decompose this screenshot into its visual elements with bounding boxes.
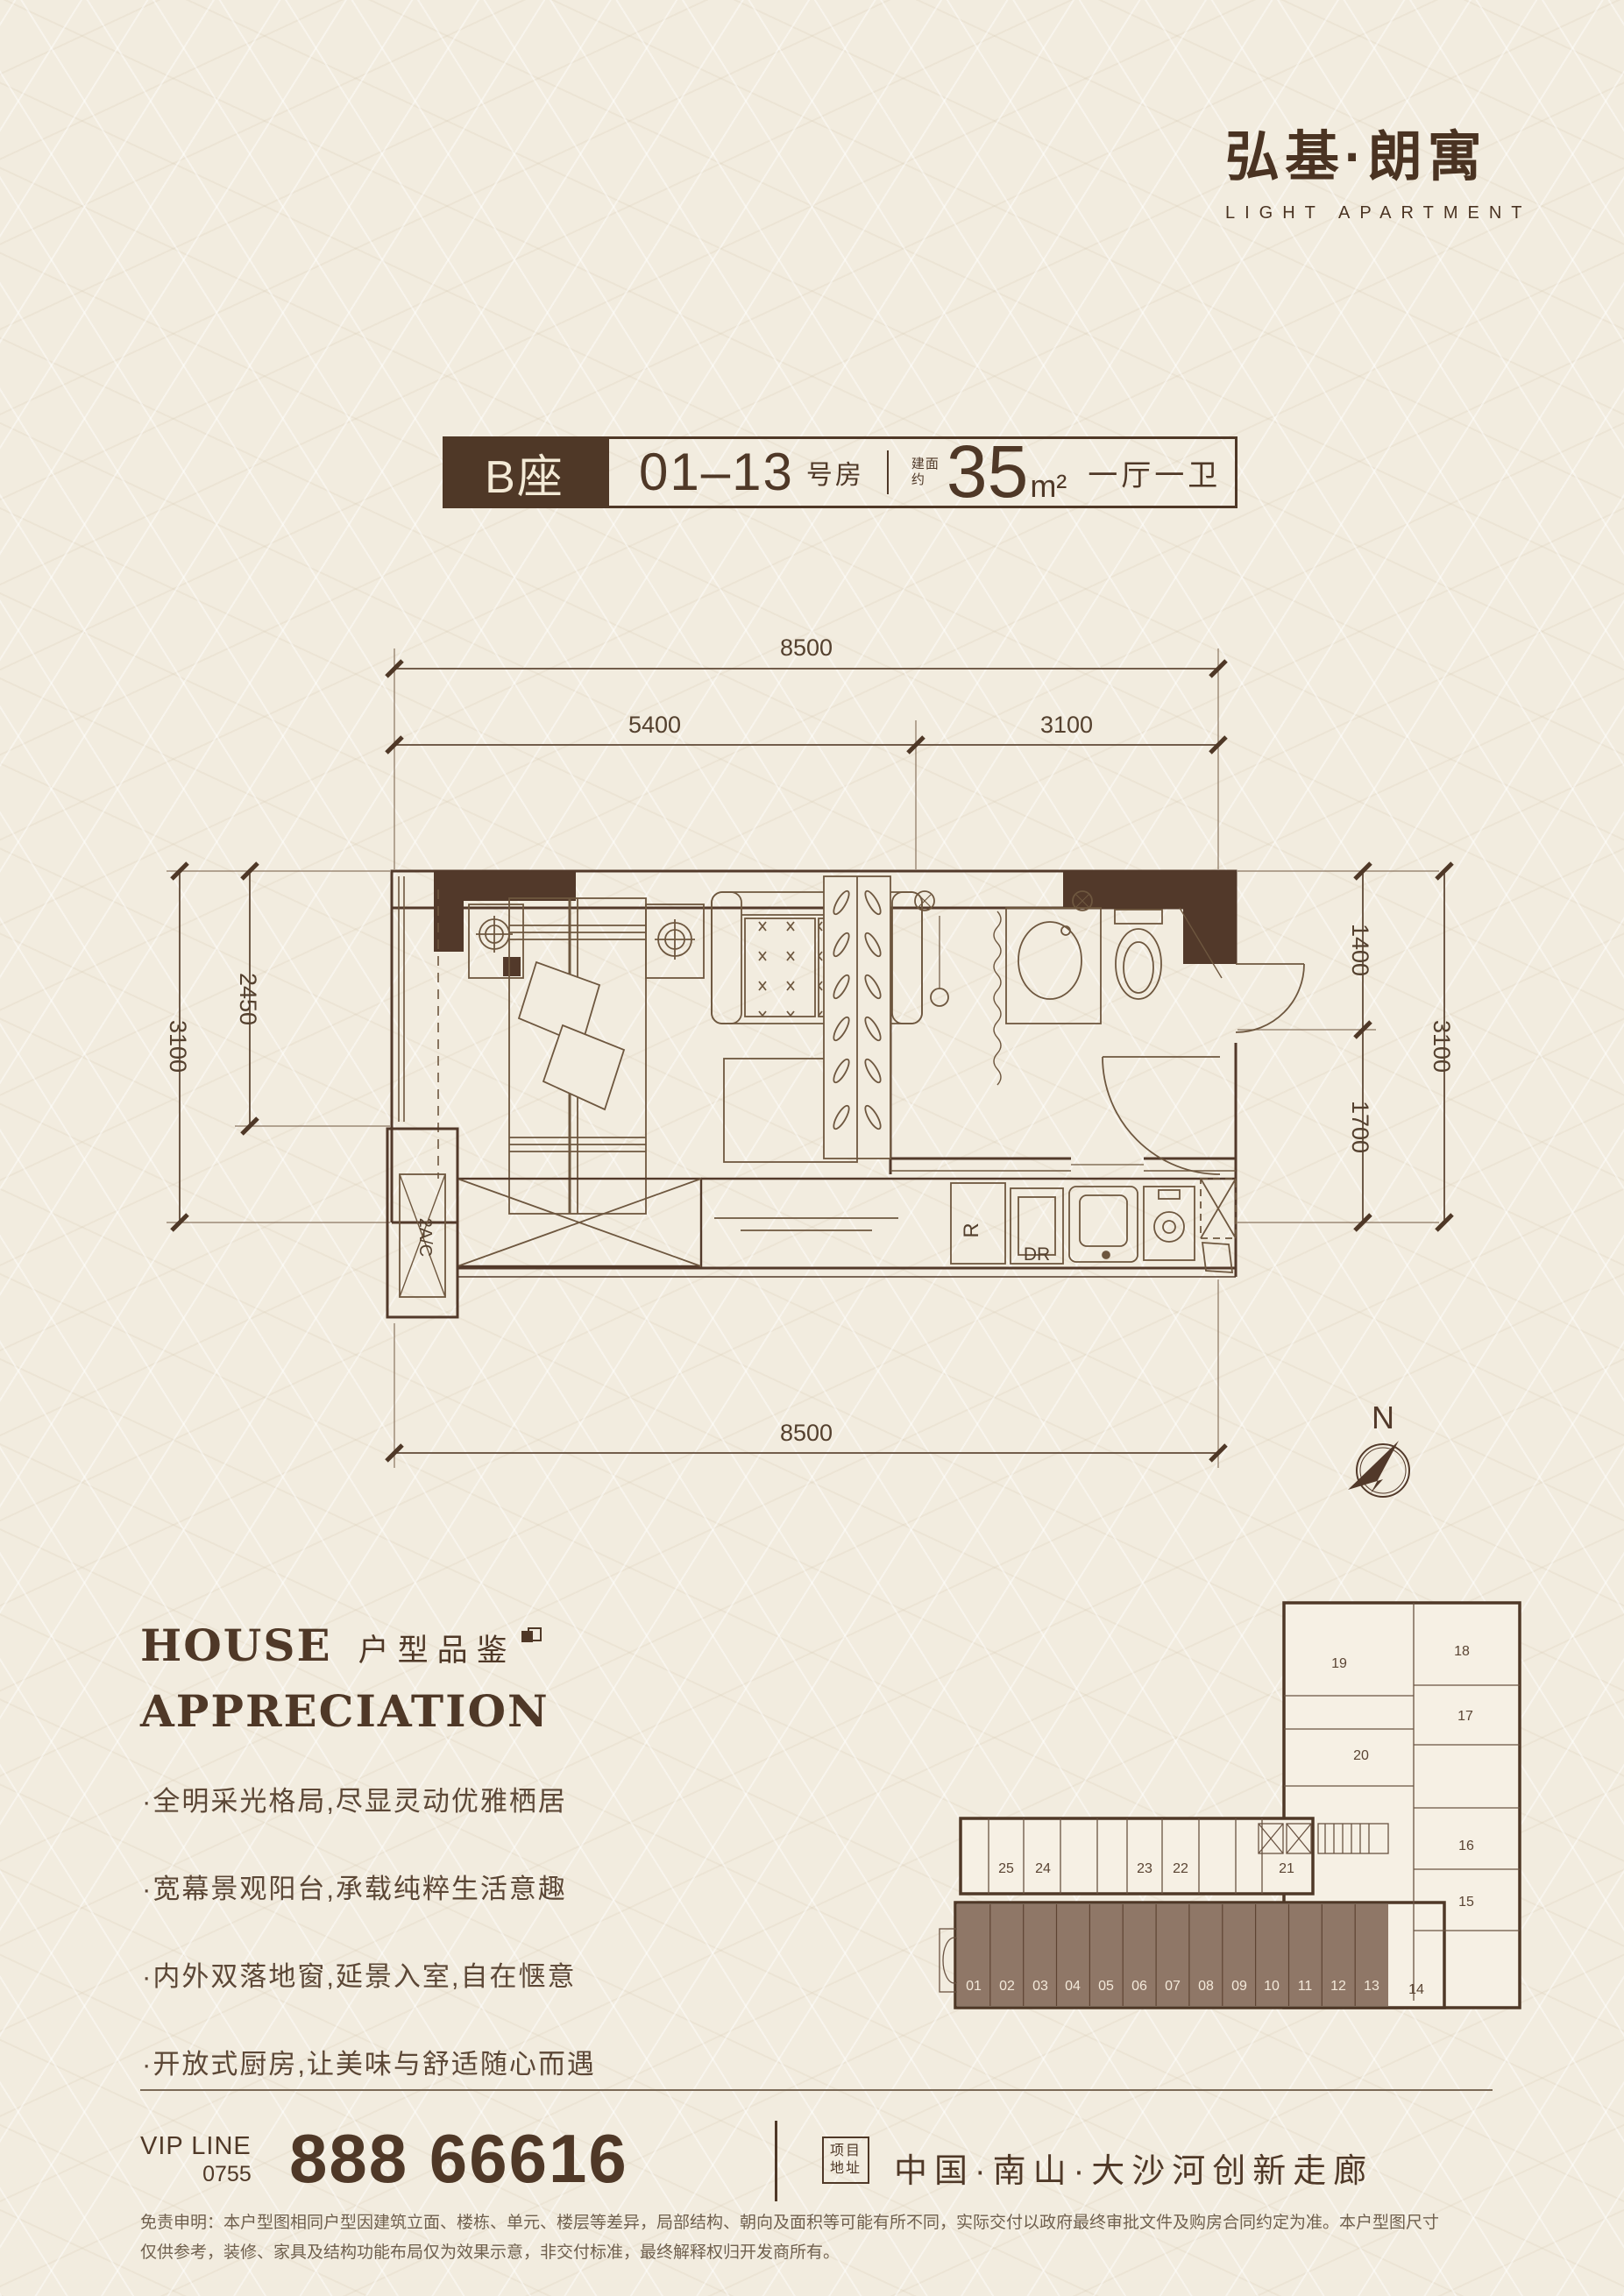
- project-address: 中国·南山·大沙河创新走廊: [894, 2144, 1373, 2192]
- unit-info-box: 01–13 号房 建面 约 35 m² 一厅一卫: [606, 436, 1238, 508]
- block-badge: B座: [443, 436, 606, 508]
- info-divider: [887, 450, 889, 494]
- dim-right-bottom: 1700: [1347, 1101, 1373, 1153]
- bullet-1: ·全明采光格局,尽显灵动优雅栖居: [142, 1758, 596, 1846]
- dim-top-left: 5400: [628, 712, 681, 738]
- brand-title: 弘基·朗寓: [1225, 112, 1531, 191]
- site-key-plan: 01 02 03 04 05 06 07 08 09 10 11 12 13 1…: [901, 1597, 1550, 2028]
- unit-16: 16: [1458, 1839, 1474, 1853]
- vip-line-label: VIP LINE: [140, 2133, 252, 2159]
- unit-08: 08: [1198, 1979, 1214, 1994]
- contact-divider: [775, 2121, 777, 2201]
- unit-18: 18: [1454, 1644, 1470, 1659]
- dim-right-top: 1400: [1347, 924, 1373, 976]
- hall-door: [1103, 1057, 1220, 1174]
- brand-subtitle: LIGHT APARTMENT: [1225, 203, 1531, 223]
- unit-01: 01: [966, 1979, 982, 1994]
- fridge-label: R: [960, 1222, 983, 1237]
- unit-11: 11: [1298, 1979, 1313, 1994]
- unit-07: 07: [1165, 1979, 1181, 1994]
- bullet-4: ·开放式厨房,让美味与舒适随心而遇: [142, 2021, 596, 2108]
- unit-19: 19: [1331, 1656, 1347, 1671]
- dim-top-right: 3100: [1040, 712, 1093, 738]
- unit-15: 15: [1458, 1895, 1474, 1910]
- selling-points: ·全明采光格局,尽显灵动优雅栖居 ·宽幕景观阳台,承载纯粹生活意趣 ·内外双落地…: [142, 1758, 596, 2108]
- area-group: 35 m²: [940, 441, 1067, 505]
- unit-10: 10: [1264, 1979, 1280, 1994]
- address-label-box: 项目 地址: [822, 2137, 869, 2184]
- brand-logo: 弘基·朗寓 LIGHT APARTMENT: [1225, 112, 1531, 223]
- wardrobe: [824, 876, 890, 1159]
- vip-phone-number: 888 66616: [289, 2124, 628, 2193]
- bathroom-fixtures: [915, 891, 1222, 1085]
- vip-line-block: VIP LINE 0755: [140, 2133, 252, 2187]
- appreciation-heading: HOUSE 户型品鉴 APPRECIATION: [140, 1619, 550, 1737]
- area-unit: m²: [1030, 468, 1067, 505]
- bedroom-furniture: [469, 898, 704, 1214]
- disclaimer-line-2: 仅供参考，装修、家具及结构功能布局仅为效果示意，非交付标准，最终解释权归开发商所…: [140, 2238, 1525, 2268]
- dimension-labels: 8500 5400 3100 8500 3100 2450 1400 1700 …: [165, 634, 1455, 1446]
- heading-en-1: HOUSE: [140, 1619, 332, 1671]
- unit-23: 23: [1137, 1861, 1152, 1876]
- heading-cn: 户型品鉴: [358, 1626, 516, 1670]
- layout-text: 一厅一卫: [1088, 451, 1221, 494]
- bullet-2: ·宽幕景观阳台,承载纯粹生活意趣: [142, 1846, 596, 1933]
- dim-left-inner: 2450: [235, 973, 261, 1025]
- poster: 弘基·朗寓 LIGHT APARTMENT B座 01–13 号房 建面 约 3…: [0, 0, 1624, 2296]
- heading-en-2: APPRECIATION: [140, 1685, 550, 1737]
- unit-12: 12: [1330, 1979, 1346, 1994]
- unit-17: 17: [1457, 1709, 1473, 1724]
- unit-05: 05: [1098, 1979, 1114, 1994]
- bullet-3: ·内外双落地窗,延景入室,自在惬意: [142, 1933, 596, 2021]
- room-range-suffix: 号房: [806, 453, 864, 492]
- footer-separator: [140, 2089, 1493, 2091]
- dim-top-total: 8500: [780, 634, 833, 661]
- dim-right-outer: 3100: [1429, 1020, 1455, 1073]
- unit-24: 24: [1035, 1861, 1051, 1876]
- floor-plan: 8500 5400 3100 8500 3100 2450 1400 1700 …: [131, 613, 1490, 1542]
- unit-03: 03: [1032, 1979, 1048, 1994]
- ac-label: 2A/C: [415, 1218, 435, 1257]
- room-range: 01–13: [639, 446, 794, 499]
- unit-21: 21: [1279, 1861, 1294, 1876]
- unit-09: 09: [1231, 1979, 1247, 1994]
- unit-25: 25: [998, 1861, 1014, 1876]
- unit-13: 13: [1364, 1979, 1379, 1994]
- entry-door: [1236, 964, 1304, 1032]
- unit-04: 04: [1065, 1979, 1081, 1994]
- unit-20: 20: [1353, 1748, 1369, 1763]
- unit-22: 22: [1173, 1861, 1188, 1876]
- squares-icon: [521, 1627, 539, 1645]
- compass: N: [1348, 1400, 1409, 1497]
- kitchen: [457, 1179, 1236, 1272]
- unit-02: 02: [999, 1979, 1015, 1994]
- compass-north-label: N: [1372, 1400, 1394, 1435]
- dim-bottom-total: 8500: [780, 1420, 833, 1446]
- vip-area-code: 0755: [140, 2162, 252, 2187]
- disclaimer-line-1: 免责申明：本户型图相同户型因建筑立面、楼栋、单元、楼层等差异，局部结构、朝向及面…: [140, 2208, 1525, 2238]
- unit-14: 14: [1408, 1982, 1424, 1997]
- dimension-lines: [180, 669, 1444, 1453]
- dimension-ticks: [172, 661, 1452, 1461]
- area-prefix: 建面 约: [911, 457, 940, 488]
- dim-left-outer: 3100: [165, 1020, 191, 1073]
- disclaimer: 免责申明：本户型图相同户型因建筑立面、楼栋、单元、楼层等差异，局部结构、朝向及面…: [140, 2208, 1525, 2268]
- unit-06: 06: [1131, 1979, 1147, 1994]
- area-value: 35: [947, 441, 1028, 502]
- dryer-label: DR: [1024, 1244, 1050, 1265]
